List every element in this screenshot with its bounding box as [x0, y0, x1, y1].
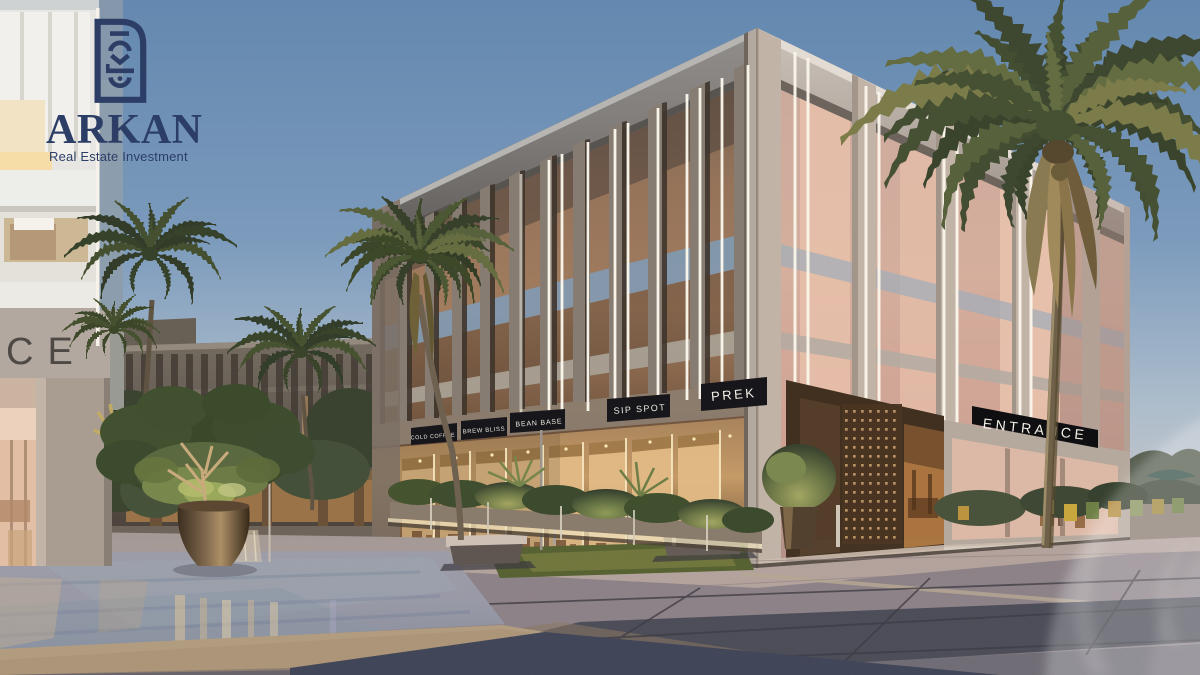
- svg-text:ARKAN: ARKAN: [46, 107, 203, 153]
- svg-text:Real Estate Investment: Real Estate Investment: [49, 149, 188, 164]
